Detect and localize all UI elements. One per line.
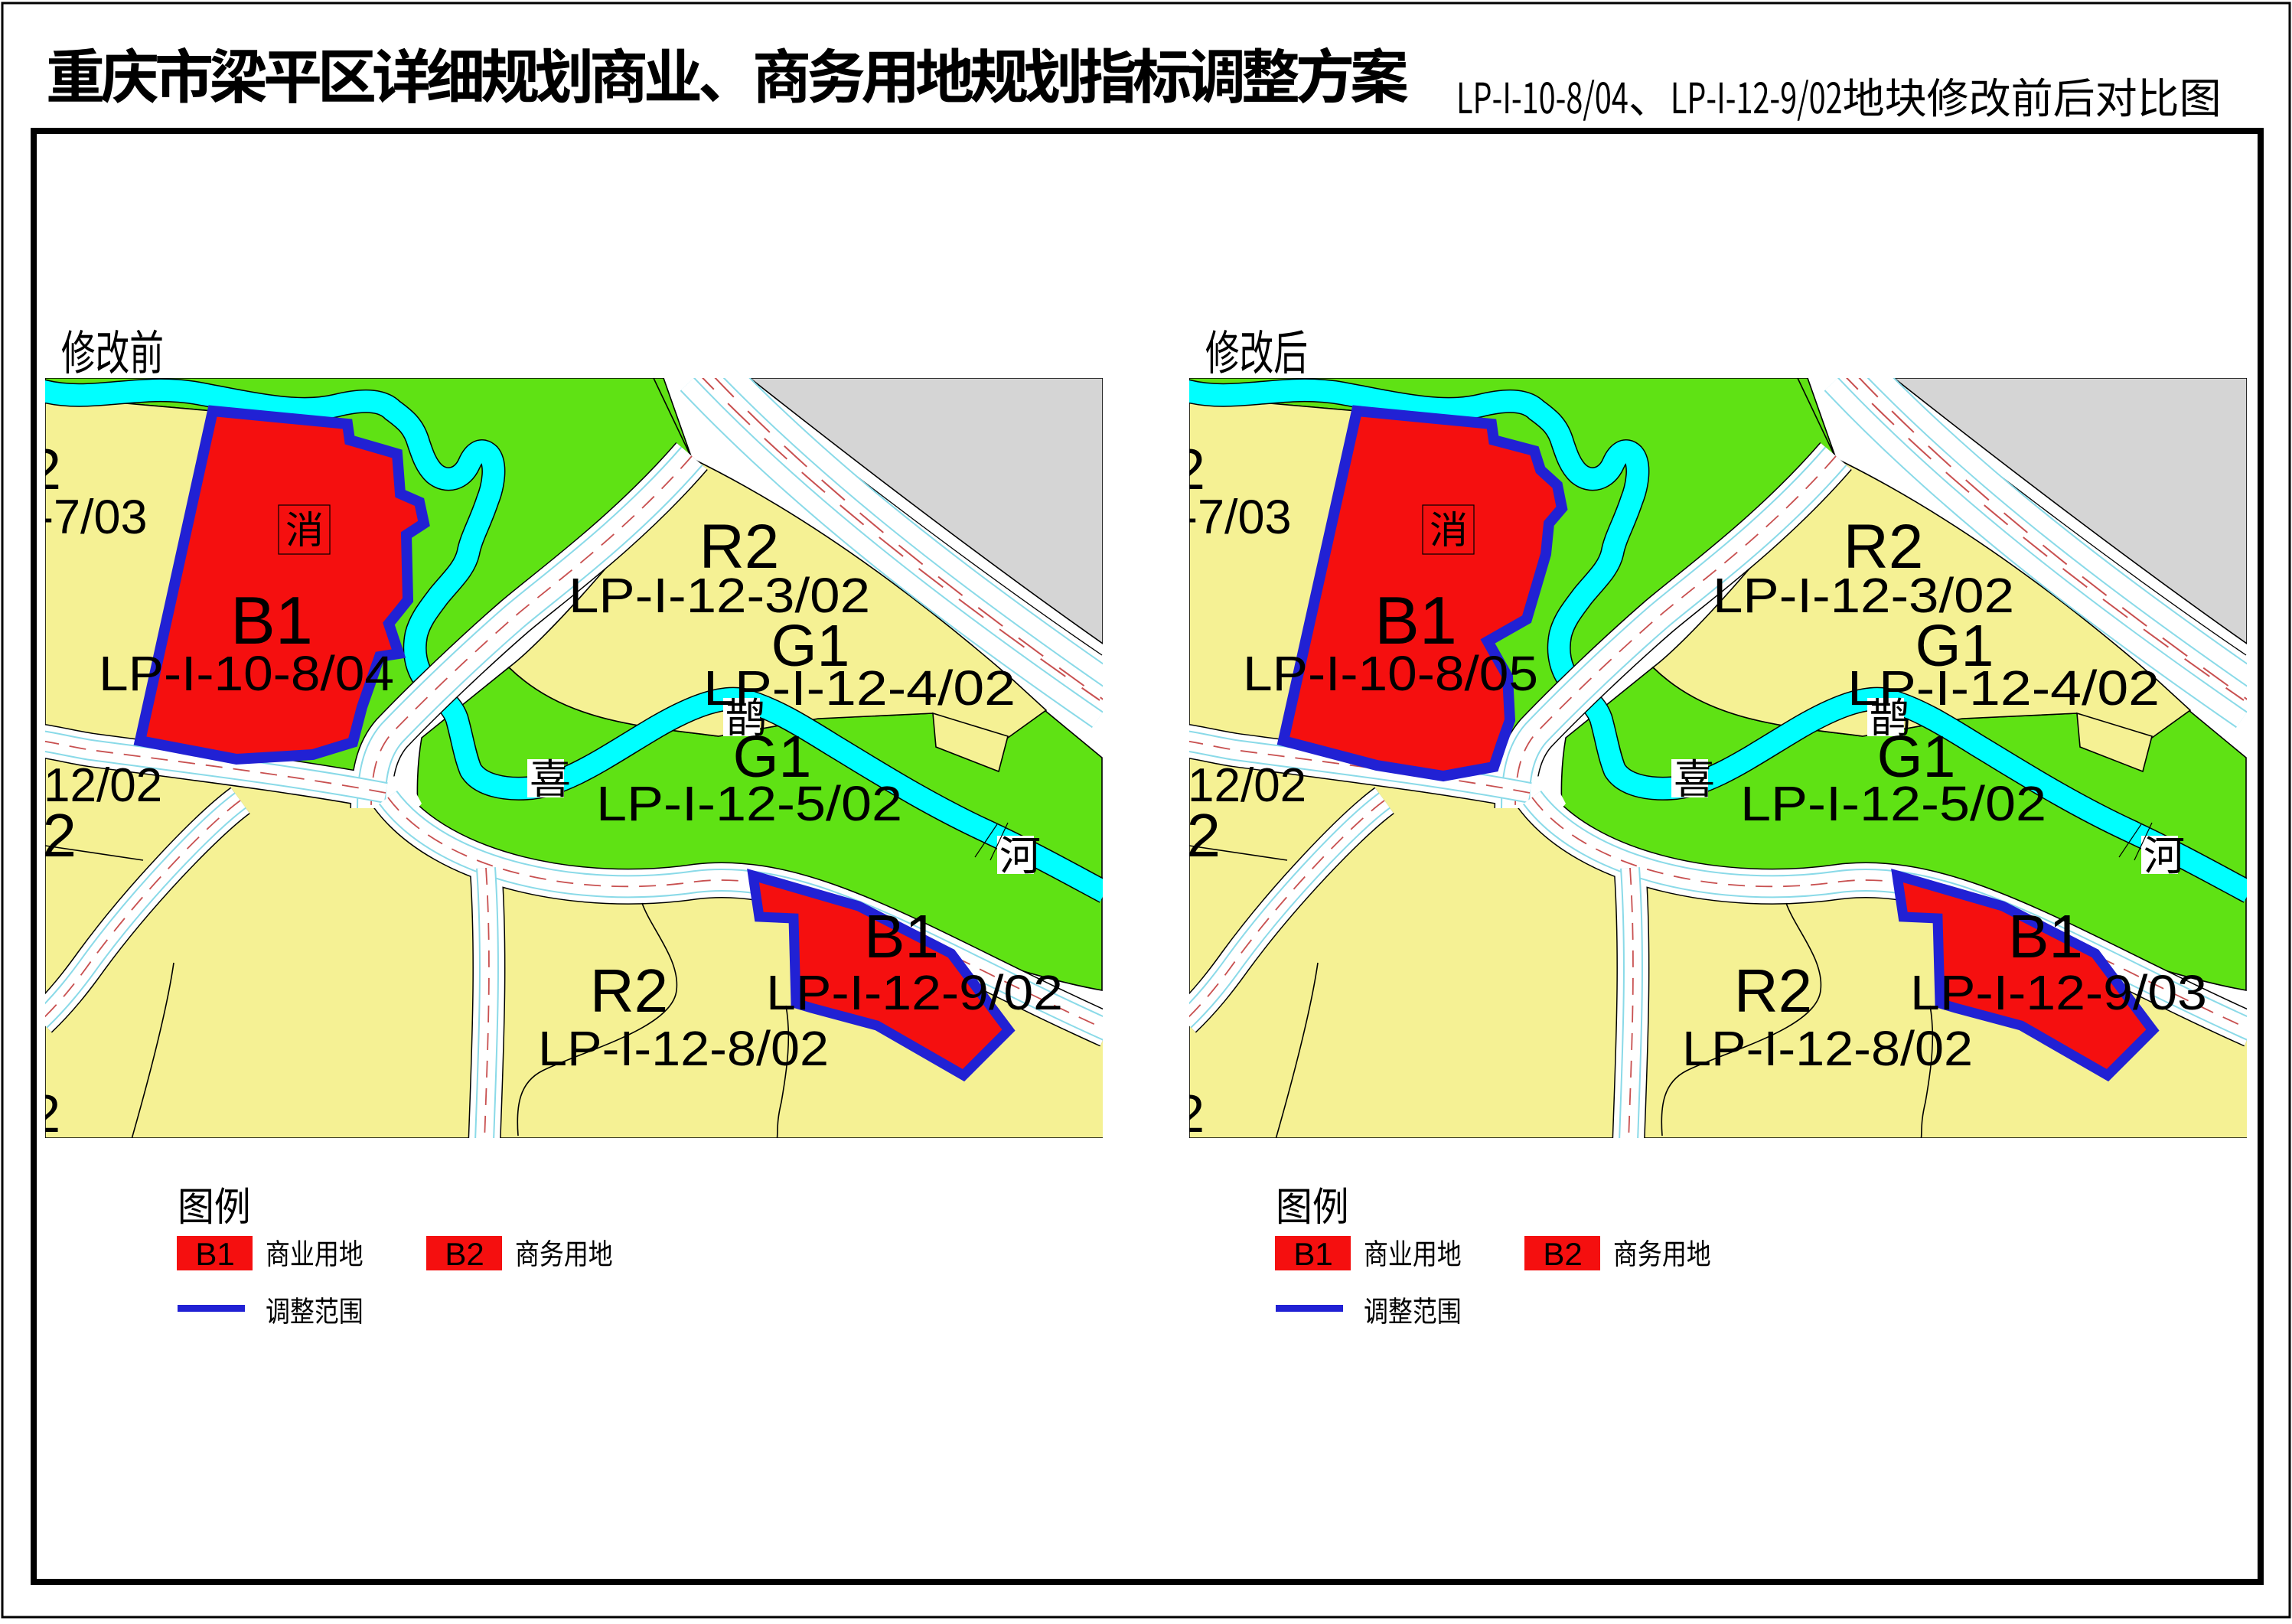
svg-text:LP-I-12-8/02: LP-I-12-8/02: [538, 1021, 829, 1076]
svg-text:LP-I-12-4/02: LP-I-12-4/02: [703, 660, 1016, 716]
svg-text:B2: B2: [445, 1236, 484, 1272]
svg-text:LP-I-12-9/02: LP-I-12-9/02: [766, 965, 1063, 1020]
svg-text:LP-I-12-9/03: LP-I-12-9/03: [1910, 965, 2207, 1020]
svg-text:R2: R2: [1734, 957, 1812, 1025]
svg-text:LP-I-10-8/05: LP-I-10-8/05: [1243, 646, 1538, 701]
svg-text:LP-I-12-8/02: LP-I-12-8/02: [1682, 1021, 1973, 1076]
svg-text:LP-I-12-4/02: LP-I-12-4/02: [1847, 660, 2160, 716]
svg-text:R2: R2: [1143, 801, 1221, 869]
svg-text:LP-I-12-5/02: LP-I-12-5/02: [1740, 776, 2046, 831]
svg-text:LP-I-12-5/02: LP-I-12-5/02: [596, 776, 902, 831]
svg-text:LP-I-10-8/04: LP-I-10-8/04: [99, 646, 394, 701]
svg-text:B1: B1: [864, 902, 939, 970]
svg-text:-7/03: -7/03: [37, 491, 148, 544]
svg-text:2: 2: [1175, 1084, 1205, 1143]
svg-text:B2: B2: [1543, 1236, 1582, 1272]
svg-text:R2: R2: [0, 801, 77, 869]
svg-text:B1: B1: [195, 1236, 234, 1272]
svg-text:B1: B1: [1293, 1236, 1332, 1272]
svg-text:R2: R2: [590, 957, 668, 1025]
svg-text:-7/03: -7/03: [1182, 491, 1292, 544]
svg-text:B1: B1: [2008, 902, 2083, 970]
